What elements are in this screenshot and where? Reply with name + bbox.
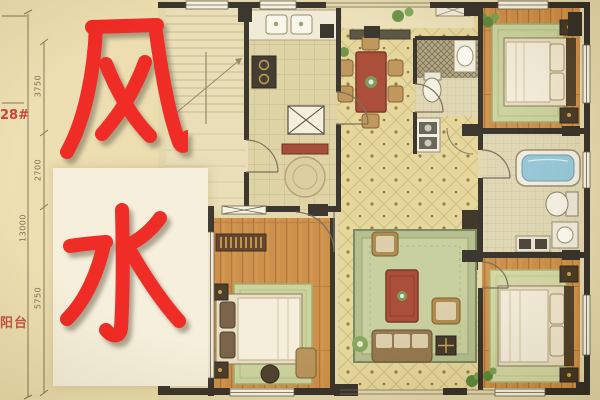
armchair bbox=[372, 232, 398, 256]
window bbox=[583, 45, 590, 103]
round-rug bbox=[285, 157, 325, 197]
side-table bbox=[436, 336, 456, 355]
counter bbox=[516, 236, 550, 252]
window bbox=[583, 295, 590, 355]
dimension-lines bbox=[2, 10, 48, 399]
pillow bbox=[220, 302, 235, 328]
washer bbox=[416, 118, 440, 152]
braced-window bbox=[222, 206, 266, 214]
toilet bbox=[546, 192, 578, 216]
window bbox=[583, 152, 590, 188]
pillow bbox=[550, 44, 564, 71]
mattress bbox=[238, 298, 300, 360]
armchair bbox=[296, 348, 316, 378]
console-cabinet bbox=[282, 144, 328, 154]
books bbox=[221, 237, 261, 248]
balcony-label: 阳台 bbox=[0, 312, 28, 331]
dimension-13000: 13000 bbox=[19, 214, 28, 242]
bedroom3 bbox=[483, 266, 578, 382]
ottoman bbox=[261, 365, 279, 383]
window bbox=[230, 389, 294, 396]
window bbox=[186, 1, 228, 9]
window bbox=[495, 389, 545, 396]
headboard bbox=[564, 286, 574, 366]
character-feng bbox=[58, 12, 188, 164]
window bbox=[207, 232, 214, 378]
floorplan-photo: 28# 阳台 3750 2700 5750 13000 bbox=[0, 0, 600, 400]
headboard bbox=[566, 38, 576, 106]
mattress bbox=[506, 42, 550, 102]
bathtub bbox=[516, 150, 580, 186]
coffee-table bbox=[386, 270, 418, 322]
window bbox=[498, 1, 548, 9]
stove bbox=[252, 56, 276, 88]
mattress bbox=[500, 290, 548, 362]
dimension-3750: 3750 bbox=[34, 75, 43, 97]
flower-pot bbox=[352, 336, 368, 352]
window bbox=[260, 1, 296, 9]
building-number-label: 28# bbox=[0, 108, 29, 123]
pillow bbox=[550, 73, 564, 100]
washbasin bbox=[454, 40, 476, 72]
pillow bbox=[550, 326, 564, 356]
dimension-5750: 5750 bbox=[34, 287, 43, 309]
character-shui bbox=[54, 202, 189, 352]
armchair bbox=[432, 298, 460, 324]
sofa bbox=[372, 330, 432, 362]
lobby bbox=[282, 106, 328, 197]
sink bbox=[552, 222, 578, 248]
pillow bbox=[220, 332, 235, 358]
dimension-2700: 2700 bbox=[34, 159, 43, 181]
bedroom1 bbox=[480, 13, 579, 124]
pillow bbox=[550, 294, 564, 324]
toilet bbox=[423, 72, 441, 102]
